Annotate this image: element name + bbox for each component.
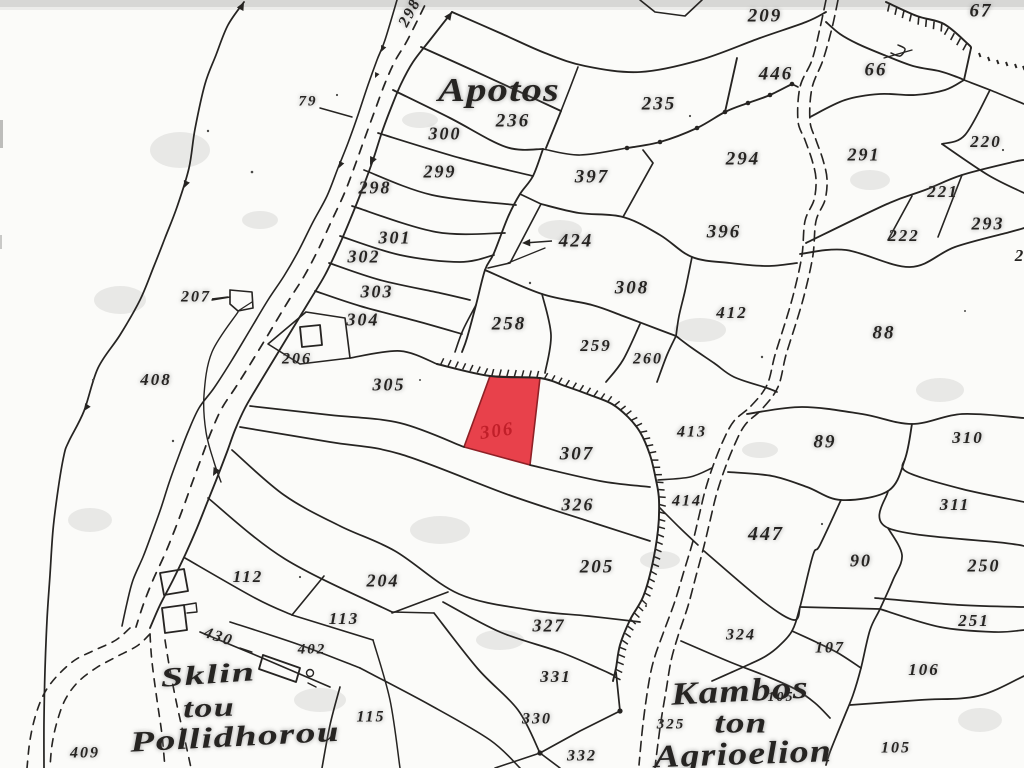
svg-text:396: 396 [706,222,742,243]
svg-text:413: 413 [676,424,707,441]
svg-text:222: 222 [887,226,920,245]
svg-text:259: 259 [579,336,612,355]
svg-text:204: 204 [366,570,400,590]
svg-text:106: 106 [908,660,940,679]
svg-text:291: 291 [847,144,881,164]
svg-text:331: 331 [539,667,572,686]
svg-text:112: 112 [233,567,264,586]
svg-text:310: 310 [951,428,984,447]
svg-text:66: 66 [865,60,888,81]
svg-text:300: 300 [428,123,462,143]
svg-text:236: 236 [495,111,531,132]
svg-text:330: 330 [521,711,552,728]
svg-text:325: 325 [656,716,686,732]
svg-text:308: 308 [614,278,650,299]
svg-text:67: 67 [970,1,993,22]
svg-text:324: 324 [725,627,756,644]
svg-text:206: 206 [281,351,312,368]
svg-text:89: 89 [814,432,837,453]
svg-text:307: 307 [559,444,595,465]
svg-text:Kambos: Kambos [669,669,810,712]
svg-text:Apotos: Apotos [436,72,560,109]
svg-text:447: 447 [747,523,784,545]
svg-text:408: 408 [139,370,172,389]
svg-text:220: 220 [969,132,1002,151]
svg-text:250: 250 [967,555,1001,575]
svg-text:326: 326 [561,494,595,514]
svg-text:397: 397 [574,167,610,188]
svg-text:Agrioelion: Agrioelion [651,732,833,768]
svg-text:414: 414 [671,493,702,510]
svg-text:424: 424 [558,231,594,252]
svg-text:107: 107 [815,640,845,657]
svg-text:304: 304 [346,309,380,329]
svg-text:207: 207 [180,289,211,306]
svg-text:258: 258 [491,314,527,335]
svg-text:260: 260 [632,351,663,368]
svg-text:tou: tou [183,692,236,724]
svg-text:221: 221 [926,182,959,201]
svg-text:2: 2 [1014,246,1024,265]
svg-text:209: 209 [747,6,783,27]
svg-text:409: 409 [69,745,100,762]
svg-text:205: 205 [579,557,615,578]
svg-text:311: 311 [939,495,971,514]
svg-text:402: 402 [297,641,327,657]
svg-text:446: 446 [758,64,794,85]
svg-text:115: 115 [356,709,385,726]
svg-text:303: 303 [360,281,394,301]
svg-text:332: 332 [566,748,597,765]
svg-text:305: 305 [372,374,406,394]
svg-text:294: 294 [725,149,761,170]
svg-text:105: 105 [881,740,911,757]
svg-text:293: 293 [971,213,1005,233]
svg-text:301: 301 [378,227,412,247]
svg-text:79: 79 [299,93,318,109]
svg-text:299: 299 [423,161,457,181]
svg-text:251: 251 [957,611,990,630]
svg-text:327: 327 [532,615,566,635]
svg-text:90: 90 [850,550,872,570]
svg-text:113: 113 [329,609,360,628]
svg-text:302: 302 [347,246,381,266]
svg-text:235: 235 [641,94,677,115]
svg-text:88: 88 [873,323,896,344]
svg-text:412: 412 [715,303,748,322]
svg-text:298: 298 [358,177,392,197]
